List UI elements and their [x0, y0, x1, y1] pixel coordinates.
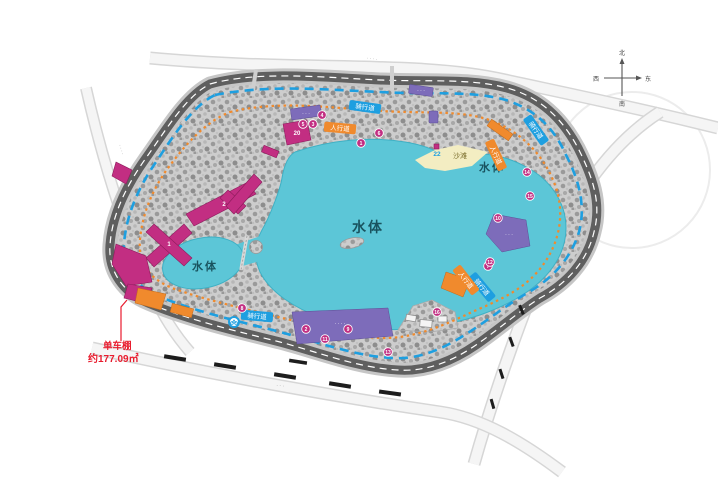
numbered-badge: 14 — [523, 168, 532, 177]
road-name-label: · · · · — [116, 144, 125, 156]
numbered-badge: 16 — [433, 308, 442, 317]
compass-east: 东 — [645, 75, 651, 83]
beach-number: 22 — [433, 151, 441, 158]
annotation-line2: 约177.09㎡ — [88, 352, 139, 365]
road-name-label: · · · — [276, 382, 285, 389]
purple-zone-topright-2 — [429, 111, 438, 123]
badge-number: 8 — [241, 306, 244, 312]
building-label: 20 — [294, 131, 301, 137]
annotation-leader-line — [121, 300, 127, 341]
badge-number: 15 — [527, 194, 533, 200]
compass-north: 北 — [619, 49, 625, 57]
beach-label: 沙滩 — [453, 151, 467, 160]
badge-number: 13 — [385, 350, 391, 356]
numbered-badge: 5 — [299, 120, 308, 129]
water-label: 水体 — [192, 259, 218, 273]
badge-number: 1 — [360, 141, 363, 147]
numbered-badge: 12 — [486, 258, 495, 267]
zone-tiny-label: · · · · — [335, 321, 346, 327]
zone-tiny-label: · · · — [302, 111, 310, 117]
numbered-badge: 2 — [302, 325, 311, 334]
badge-number: 12 — [487, 260, 493, 266]
badge-number: 11 — [322, 337, 328, 343]
bike-shed-annotation: 单车棚 约177.09㎡ — [88, 300, 139, 365]
numbered-badge: 4 — [318, 111, 327, 120]
badge-number: 16 — [434, 310, 440, 316]
numbered-badge: 3 — [309, 120, 318, 129]
badge-number: 5 — [302, 122, 305, 128]
numbered-badge: 11 — [321, 335, 330, 344]
badge-number: 2 — [305, 327, 308, 333]
badge-number: 14 — [524, 170, 530, 176]
badge-number: 4 — [321, 113, 324, 119]
site-plan-canvas: 22 沙滩 水体水体水体 骑行道骑行道骑行道骑行道人行道人行道人行道 16534… — [0, 0, 718, 485]
compass-south: 南 — [619, 100, 625, 108]
bike-roundel-icon — [228, 316, 240, 328]
zone-tiny-label: · · · — [505, 232, 513, 238]
water-label: 水体 — [352, 219, 384, 235]
numbered-badge: 13 — [384, 348, 393, 357]
badge-number: 10 — [495, 216, 501, 222]
numbered-badge: 6 — [375, 129, 384, 138]
numbered-badge: 8 — [238, 304, 247, 313]
badge-number: 6 — [378, 131, 381, 137]
numbered-badge: 1 — [357, 139, 366, 148]
badge-number: 9 — [347, 327, 350, 333]
zone-tiny-label: · · · — [417, 88, 425, 94]
numbered-badge: 15 — [526, 192, 535, 201]
compass-west: 西 — [593, 76, 599, 83]
badge-number: 3 — [312, 122, 315, 128]
island-1 — [250, 241, 263, 254]
annotation-line1: 单车棚 — [103, 340, 132, 352]
site-plan-map: 22 沙滩 水体水体水体 骑行道骑行道骑行道骑行道人行道人行道人行道 16534… — [0, 0, 718, 485]
marker-near-beach — [434, 144, 439, 149]
numbered-badge: 10 — [494, 214, 503, 223]
